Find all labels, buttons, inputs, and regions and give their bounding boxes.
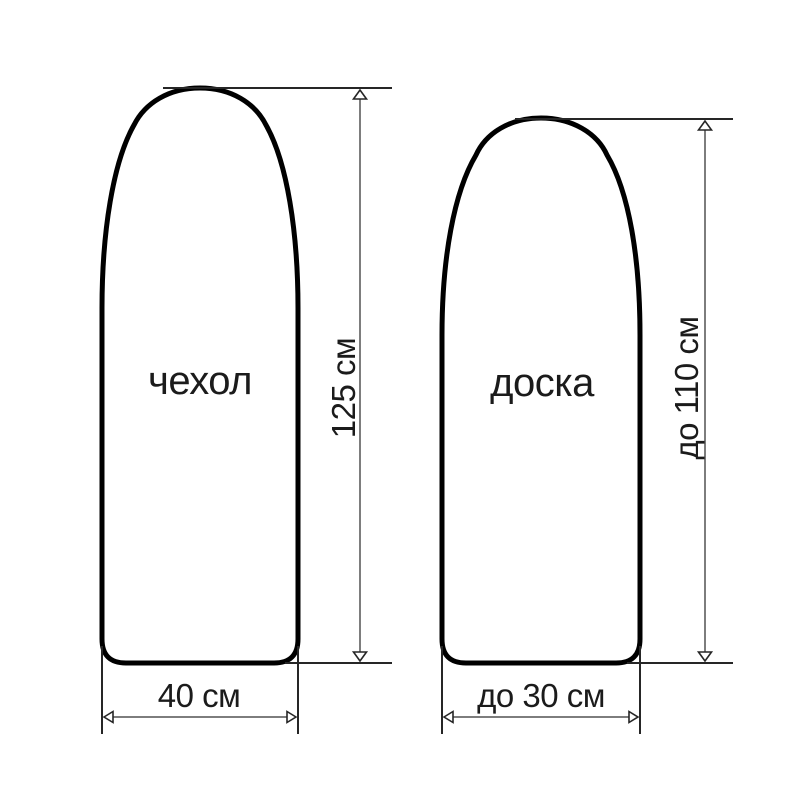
board-width-label: до 30 см	[477, 677, 605, 714]
diagram-canvas: чехол 125 см 40 см доска до 110 см	[0, 0, 800, 800]
board-label: доска	[490, 361, 595, 405]
arrowhead-up-icon	[354, 90, 367, 99]
cover-height-label: 125 см	[325, 338, 362, 438]
arrowhead-right-icon	[629, 712, 638, 723]
arrowhead-up-icon	[699, 121, 712, 130]
arrowhead-down-icon	[699, 652, 712, 661]
arrowhead-left-icon	[104, 712, 113, 723]
arrowhead-right-icon	[287, 712, 296, 723]
arrowhead-left-icon	[444, 712, 453, 723]
dimension-diagram: чехол 125 см 40 см доска до 110 см	[0, 0, 800, 800]
arrowhead-down-icon	[354, 652, 367, 661]
cover-label: чехол	[148, 359, 252, 403]
cover-width-label: 40 см	[158, 677, 241, 714]
board-height-label: до 110 см	[668, 316, 705, 459]
